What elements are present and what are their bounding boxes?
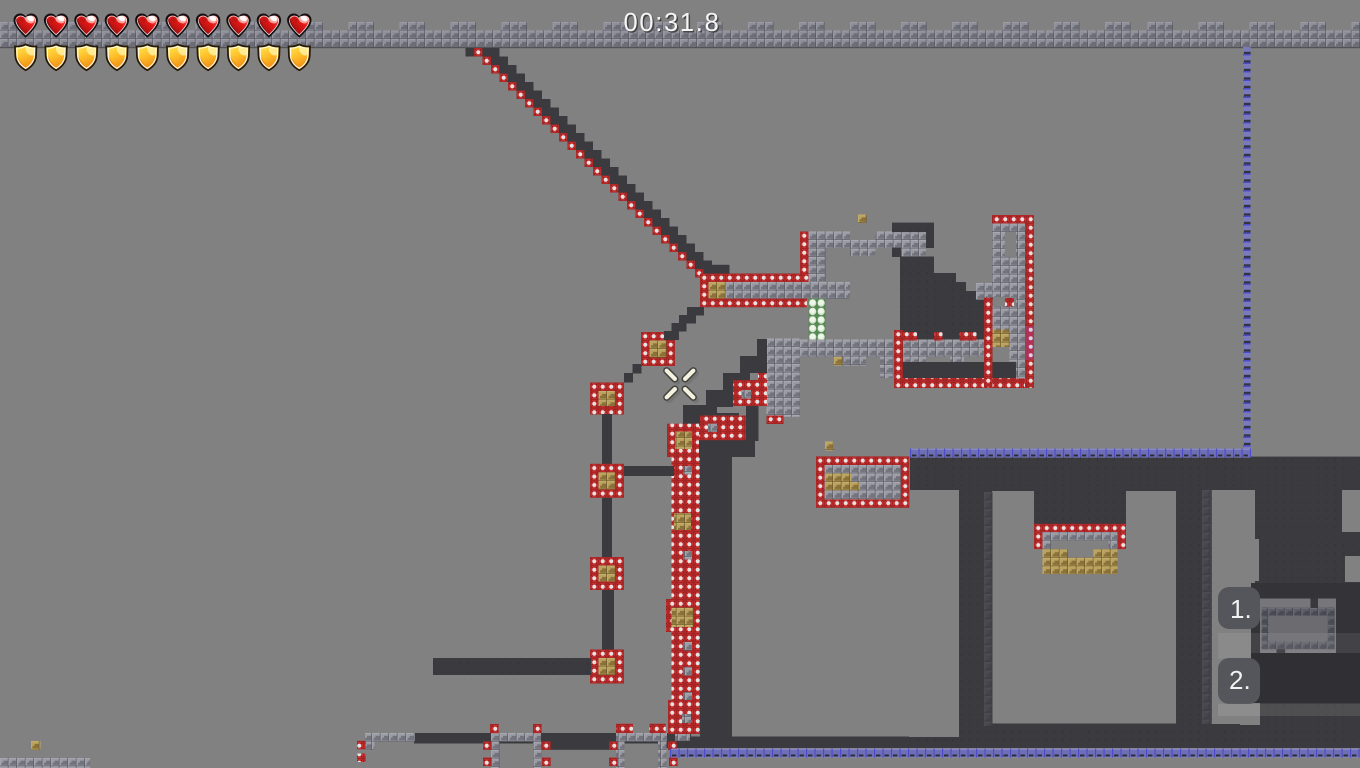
svg-text:2.: 2. bbox=[1229, 665, 1251, 695]
svg-text:00:31.8: 00:31.8 bbox=[624, 9, 721, 37]
svg-text:1.: 1. bbox=[1230, 594, 1252, 624]
